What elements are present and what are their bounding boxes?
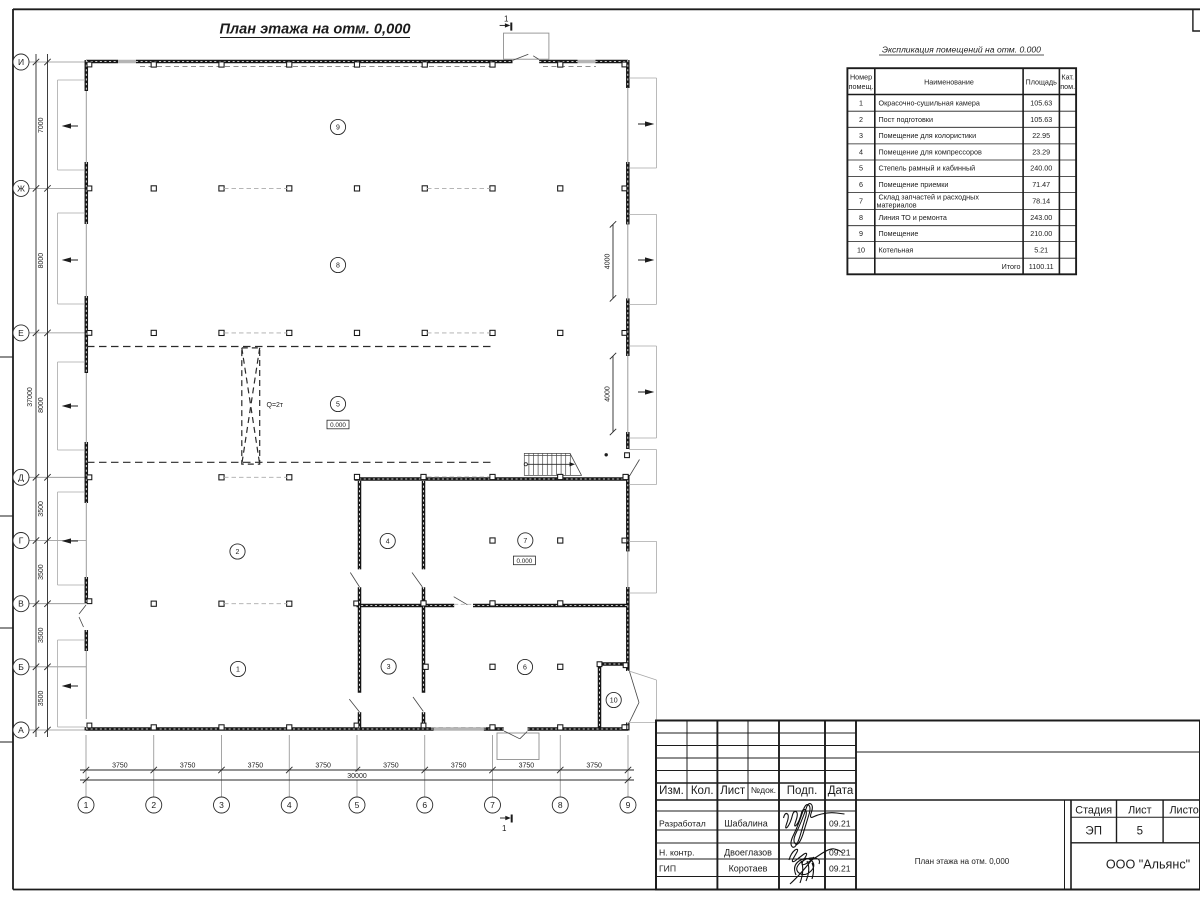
svg-text:3750: 3750	[519, 762, 535, 769]
svg-text:8: 8	[336, 263, 340, 270]
svg-text:1: 1	[504, 15, 509, 24]
svg-text:материалов: материалов	[877, 201, 917, 210]
svg-text:3750: 3750	[112, 762, 128, 769]
svg-text:4: 4	[859, 147, 863, 156]
svg-text:Окрасочно-сушильная камера: Окрасочно-сушильная камера	[879, 98, 980, 107]
svg-text:Итого: Итого	[1002, 262, 1021, 271]
svg-text:Степель рамный и кабинный: Степель рамный и кабинный	[879, 164, 976, 173]
svg-text:3750: 3750	[383, 762, 399, 769]
svg-text:Подп.: Подп.	[787, 785, 818, 797]
svg-text:Кат.: Кат.	[1061, 73, 1074, 82]
svg-text:Н. контр.: Н. контр.	[659, 848, 694, 858]
svg-text:105.63: 105.63	[1030, 115, 1052, 124]
svg-text:Кол.: Кол.	[691, 785, 714, 797]
svg-text:1: 1	[236, 667, 240, 674]
svg-text:3: 3	[387, 664, 391, 671]
svg-text:3750: 3750	[586, 762, 602, 769]
svg-text:помещ.: помещ.	[849, 82, 874, 91]
svg-text:2: 2	[236, 549, 240, 556]
svg-text:Лист: Лист	[720, 785, 746, 797]
svg-text:ООО "Альянс": ООО "Альянс"	[1106, 858, 1190, 872]
svg-text:7000: 7000	[38, 117, 45, 133]
svg-text:Линия ТО и ремонта: Линия ТО и ремонта	[879, 213, 947, 222]
svg-text:2: 2	[859, 115, 863, 124]
svg-text:Пост подготовки: Пост подготовки	[879, 115, 933, 124]
svg-text:09.21: 09.21	[829, 864, 851, 874]
svg-text:Коротаев: Коротаев	[729, 864, 768, 874]
svg-text:4000: 4000	[605, 254, 612, 270]
svg-text:0.000: 0.000	[517, 558, 533, 565]
svg-text:Листов: Листов	[1169, 805, 1200, 817]
svg-text:3750: 3750	[315, 762, 331, 769]
svg-text:4: 4	[386, 539, 390, 546]
svg-text:Номер: Номер	[850, 73, 872, 82]
svg-text:И: И	[18, 57, 24, 67]
svg-text:3500: 3500	[38, 691, 45, 707]
svg-text:Помещение для колористики: Помещение для колористики	[879, 131, 977, 140]
svg-text:6: 6	[523, 665, 527, 672]
svg-text:3500: 3500	[38, 627, 45, 643]
svg-text:4000: 4000	[605, 386, 612, 402]
svg-text:Ж: Ж	[17, 183, 25, 193]
svg-text:пом.: пом.	[1060, 82, 1075, 91]
svg-text:Помещение приемки: Помещение приемки	[879, 180, 949, 189]
svg-text:22.95: 22.95	[1032, 131, 1050, 140]
svg-text:А: А	[18, 725, 24, 735]
svg-text:6: 6	[859, 180, 863, 189]
svg-text:243.00: 243.00	[1030, 213, 1052, 222]
svg-text:ГИП: ГИП	[659, 864, 676, 874]
svg-text:Наименование: Наименование	[924, 78, 974, 87]
svg-text:5: 5	[1137, 826, 1143, 838]
svg-text:3: 3	[219, 800, 224, 810]
svg-text:10: 10	[610, 698, 618, 705]
svg-text:1: 1	[859, 98, 863, 107]
svg-text:09.21: 09.21	[829, 819, 851, 829]
svg-text:8000: 8000	[38, 397, 45, 413]
svg-text:ЭП: ЭП	[1085, 826, 1102, 838]
svg-text:3500: 3500	[38, 564, 45, 580]
svg-text:71.47: 71.47	[1032, 180, 1050, 189]
svg-text:8000: 8000	[38, 253, 45, 269]
svg-text:1: 1	[84, 800, 89, 810]
svg-text:7: 7	[859, 197, 863, 206]
svg-text:3750: 3750	[180, 762, 196, 769]
svg-text:3750: 3750	[451, 762, 467, 769]
svg-text:3500: 3500	[38, 501, 45, 517]
svg-text:Помещение для компрессоров: Помещение для компрессоров	[879, 147, 982, 156]
svg-text:210.00: 210.00	[1030, 229, 1052, 238]
svg-text:Стадия: Стадия	[1075, 805, 1112, 817]
svg-text:Д: Д	[18, 472, 24, 482]
svg-text:Q=2т: Q=2т	[267, 402, 284, 409]
svg-text:Дата: Дата	[828, 785, 854, 797]
svg-text:План этажа на отм. 0,000: План этажа на отм. 0,000	[220, 22, 411, 38]
svg-text:37000: 37000	[27, 387, 34, 407]
svg-text:1: 1	[502, 824, 507, 833]
svg-text:9: 9	[336, 125, 340, 132]
svg-text:5: 5	[336, 402, 340, 409]
svg-text:Е: Е	[18, 328, 24, 338]
svg-text:10: 10	[857, 245, 865, 254]
svg-text:В: В	[18, 599, 24, 609]
svg-text:240.00: 240.00	[1030, 164, 1052, 173]
svg-text:Г: Г	[19, 536, 24, 546]
svg-text:Лист: Лист	[1128, 805, 1152, 817]
svg-text:№док.: №док.	[751, 785, 776, 795]
svg-text:Помещение: Помещение	[879, 229, 919, 238]
svg-text:9: 9	[626, 800, 631, 810]
svg-text:1100.11: 1100.11	[1029, 262, 1054, 271]
svg-text:105.63: 105.63	[1030, 98, 1052, 107]
svg-text:Изм.: Изм.	[659, 785, 684, 797]
svg-text:0.000: 0.000	[330, 422, 346, 429]
svg-text:Б: Б	[18, 662, 24, 672]
svg-text:Площадь: Площадь	[1026, 78, 1058, 87]
svg-text:6: 6	[422, 800, 427, 810]
svg-text:8: 8	[558, 800, 563, 810]
svg-text:3750: 3750	[248, 762, 264, 769]
svg-text:4: 4	[287, 800, 292, 810]
svg-text:Двоеглазов: Двоеглазов	[724, 848, 772, 858]
svg-text:Разработал: Разработал	[659, 819, 706, 829]
svg-text:7: 7	[523, 538, 527, 545]
svg-text:Шабалина: Шабалина	[724, 819, 767, 829]
svg-text:8: 8	[859, 213, 863, 222]
svg-text:2: 2	[151, 800, 156, 810]
svg-text:5: 5	[859, 164, 863, 173]
svg-text:9: 9	[859, 229, 863, 238]
svg-text:План этажа на отм. 0,000: План этажа на отм. 0,000	[915, 857, 1010, 866]
svg-text:23.29: 23.29	[1032, 147, 1050, 156]
svg-text:Экспликация помещений на отм.: Экспликация помещений на отм. 0.000	[882, 45, 1041, 55]
svg-text:5: 5	[355, 800, 360, 810]
svg-text:3: 3	[859, 131, 863, 140]
svg-text:Котельная: Котельная	[879, 245, 914, 254]
svg-text:5.21: 5.21	[1034, 245, 1048, 254]
svg-text:78.14: 78.14	[1032, 197, 1050, 206]
svg-text:7: 7	[490, 800, 495, 810]
svg-text:30000: 30000	[347, 773, 367, 780]
